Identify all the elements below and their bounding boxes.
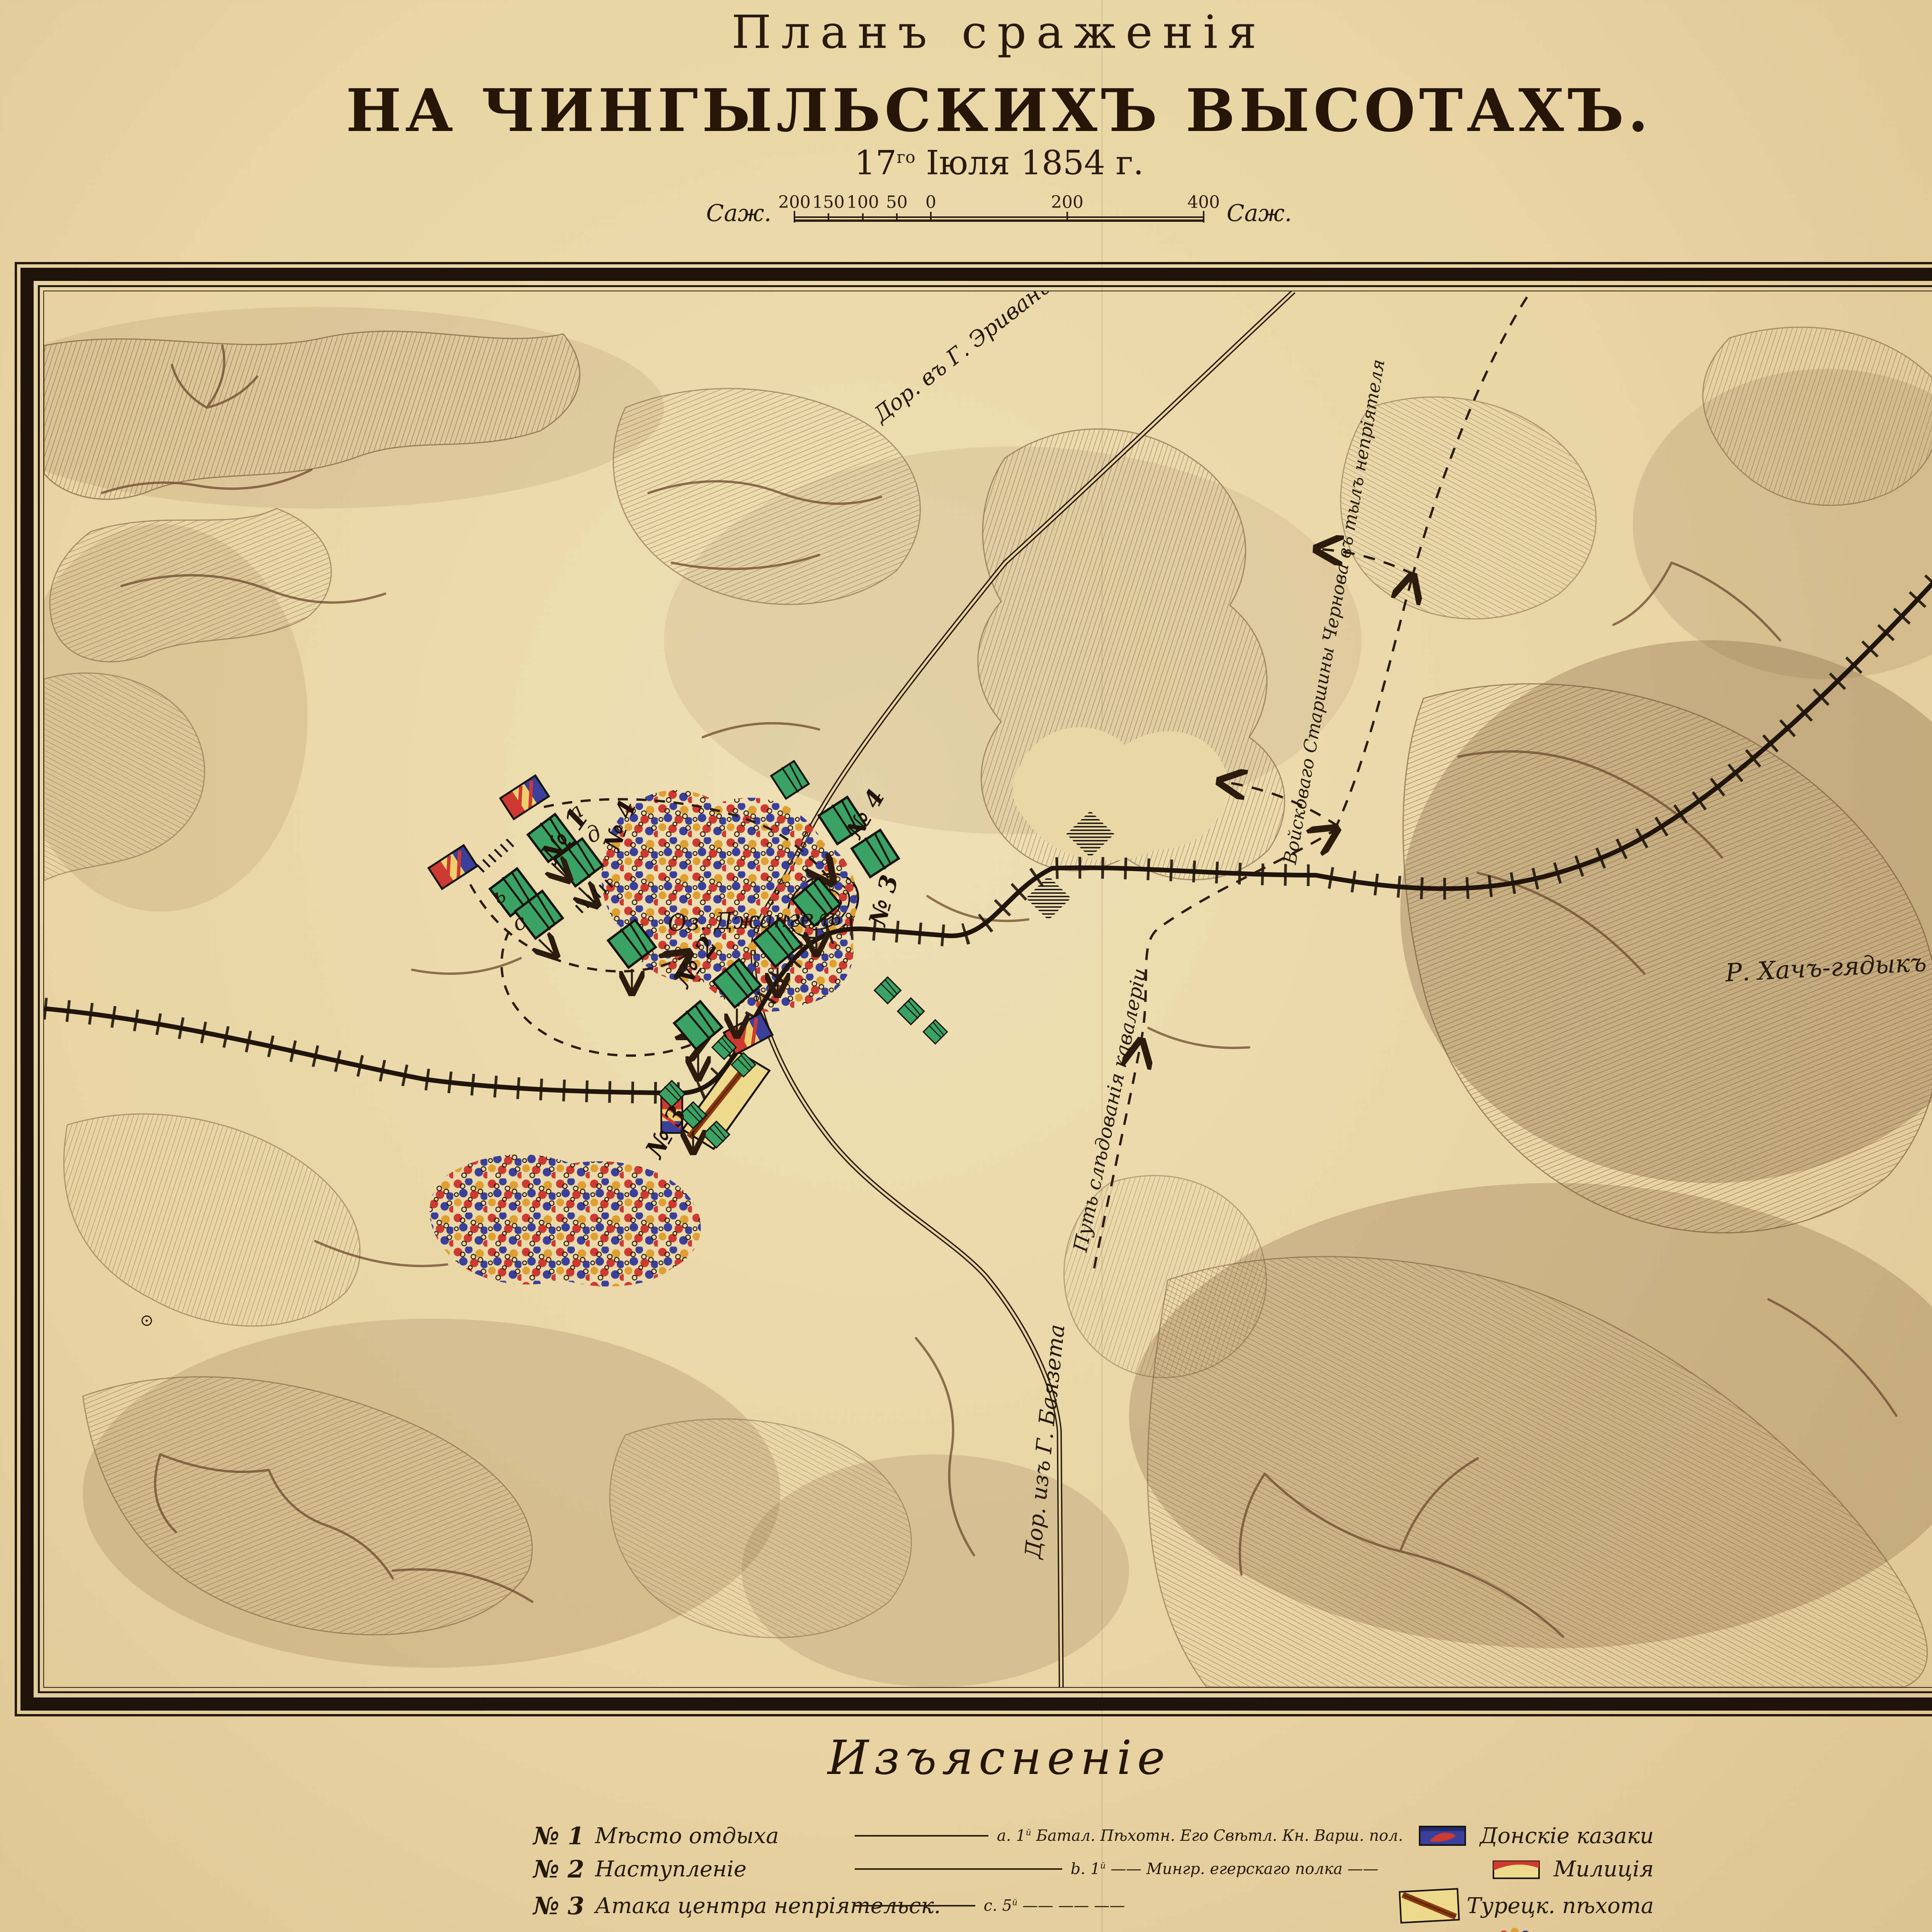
scale-bar-graphic: 200 150 100 50 0 200 400	[777, 193, 1221, 233]
map-title-date: 17го Іюля 1854 г.	[0, 144, 1932, 182]
map-frame-band: Дор. въ Г. Эривань Дор. изъ Г. Баязета Р…	[20, 268, 1932, 1711]
scale-tick-label: 200	[778, 193, 811, 212]
legend-table: № 1 Мѣсто отдыха a. 1й Батал. Пѣхотн. Ег…	[533, 1819, 1654, 1932]
scale-tick-label: 200	[1051, 193, 1083, 212]
legend-right-label: Турецк. пѣхота	[1467, 1893, 1654, 1918]
scale-unit-left: Саж.	[706, 200, 772, 227]
legend-row-1: № 1 Мѣсто отдыха a. 1й Батал. Пѣхотн. Ег…	[533, 1819, 1654, 1852]
map-frame: Дор. въ Г. Эривань Дор. изъ Г. Баязета Р…	[15, 262, 1932, 1716]
spring-mark	[142, 1316, 151, 1325]
mid-superscript: й	[1012, 1898, 1017, 1908]
date-number: 17	[854, 144, 896, 182]
legend-heading: Изъясненіе	[0, 1730, 1932, 1785]
legend-name: Наступленіе	[595, 1857, 846, 1882]
legend-mid-text: a. 1й Батал. Пѣхотн. Его Свѣтл. Кн. Варш…	[997, 1827, 1406, 1845]
mid-prefix: b. 1	[1071, 1860, 1100, 1878]
legend-number: № 1	[533, 1822, 595, 1850]
mid-body: —— —— ——	[1022, 1897, 1125, 1915]
map-title-line2: НА ЧИНГЫЛЬСКИХЪ ВЫСОТАХЪ.	[0, 76, 1932, 145]
legend-mid-text: c. 5й —— —— ——	[984, 1897, 1393, 1915]
label-road-erivan: Дор. въ Г. Эривань	[868, 291, 1055, 428]
scanned-battle-map-page: { "title": { "line1": "Планъ сраженія", …	[0, 0, 1932, 1932]
turkish-troops-cluster-west	[430, 1154, 701, 1286]
battle-map-canvas: Дор. въ Г. Эривань Дор. изъ Г. Баязета Р…	[44, 291, 1932, 1687]
date-rest: Іюля 1854 г.	[915, 144, 1144, 182]
militia-flag-symbol	[1480, 1857, 1554, 1881]
terrain-shading	[44, 307, 1932, 1687]
map-title-line1: Планъ сраженія	[0, 5, 1932, 59]
leader-line	[855, 1868, 1062, 1870]
legend-row-2: № 2 Наступленіе b. 1й —— Мингр. егерскаг…	[533, 1852, 1654, 1886]
scale-tick-label: 0	[925, 193, 936, 212]
map-frame-inner-line: Дор. въ Г. Эривань Дор. изъ Г. Баязета Р…	[38, 285, 1932, 1693]
scale-tick-label: 400	[1187, 193, 1220, 212]
scale-bar-lines	[794, 211, 1204, 223]
mid-body: Батал. Пѣхотн. Его Свѣтл. Кн. Варш. пол.	[1036, 1827, 1403, 1845]
scale-tick-label: 150	[812, 193, 845, 212]
mid-prefix: a. 1	[997, 1827, 1026, 1845]
legend-row-3: № 3 Атака центра непріятельск. c. 5й —— …	[533, 1886, 1654, 1926]
scale-tick-label: 50	[886, 193, 908, 212]
mid-prefix: c. 5	[984, 1897, 1012, 1915]
turkish-infantry-symbol	[1393, 1886, 1467, 1925]
mid-superscript: й	[1026, 1828, 1031, 1838]
mid-body: —— Мингр. егерскаго полка ——	[1111, 1860, 1378, 1878]
don-cossack-flag	[429, 845, 477, 889]
map-frame-innermost-line: Дор. въ Г. Эривань Дор. изъ Г. Баязета Р…	[43, 291, 1932, 1688]
legend-right-label: Донскіе казаки	[1480, 1823, 1654, 1849]
scale-unit-right: Саж.	[1227, 200, 1292, 227]
date-superscript: го	[897, 148, 915, 167]
scale-tick-label: 100	[847, 193, 879, 212]
leader-line	[855, 1835, 988, 1837]
legend-name: Мѣсто отдыха	[595, 1823, 846, 1849]
leader-line	[855, 1905, 975, 1906]
don-cossacks-symbol	[1406, 1823, 1480, 1848]
legend-number: № 2	[533, 1855, 595, 1883]
legend-right-label: Милиція	[1554, 1857, 1654, 1882]
legend-name: Атака центра непріятельск.	[595, 1893, 846, 1918]
don-cossack-flag	[500, 776, 549, 819]
legend-mid-text: b. 1й —— Мингр. егерскаго полка ——	[1071, 1860, 1480, 1878]
legend-row-4: № 4 Атака горъ 2 линіею d. 5й —— Тифлиск…	[533, 1926, 1654, 1932]
legend-number: № 3	[533, 1892, 595, 1920]
mid-superscript: й	[1100, 1861, 1105, 1871]
turkish-militia-dots-symbol	[1485, 1926, 1558, 1932]
scale-bar: Саж. 200 150 100 50 0 200 400 Саж.	[0, 193, 1932, 233]
